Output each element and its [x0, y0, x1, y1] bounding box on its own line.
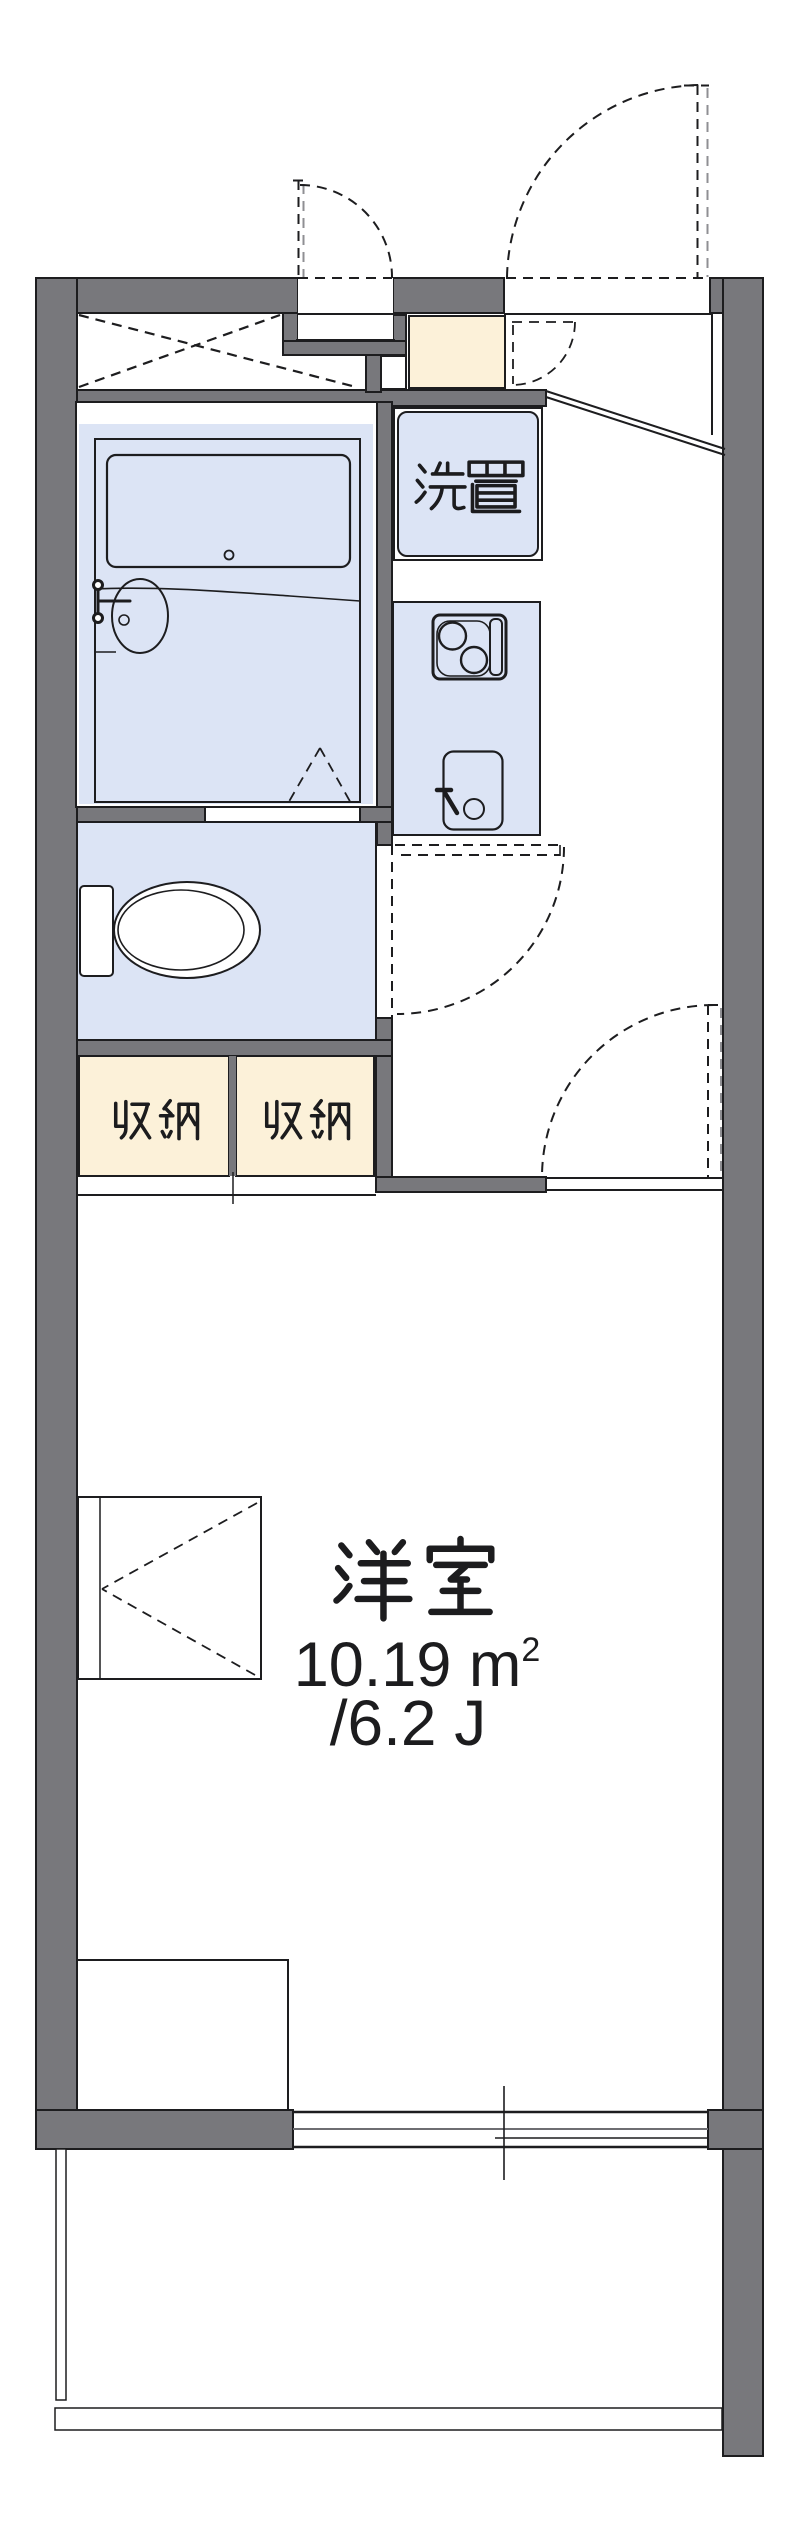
- svg-text:/6.2 J: /6.2 J: [330, 1687, 487, 1759]
